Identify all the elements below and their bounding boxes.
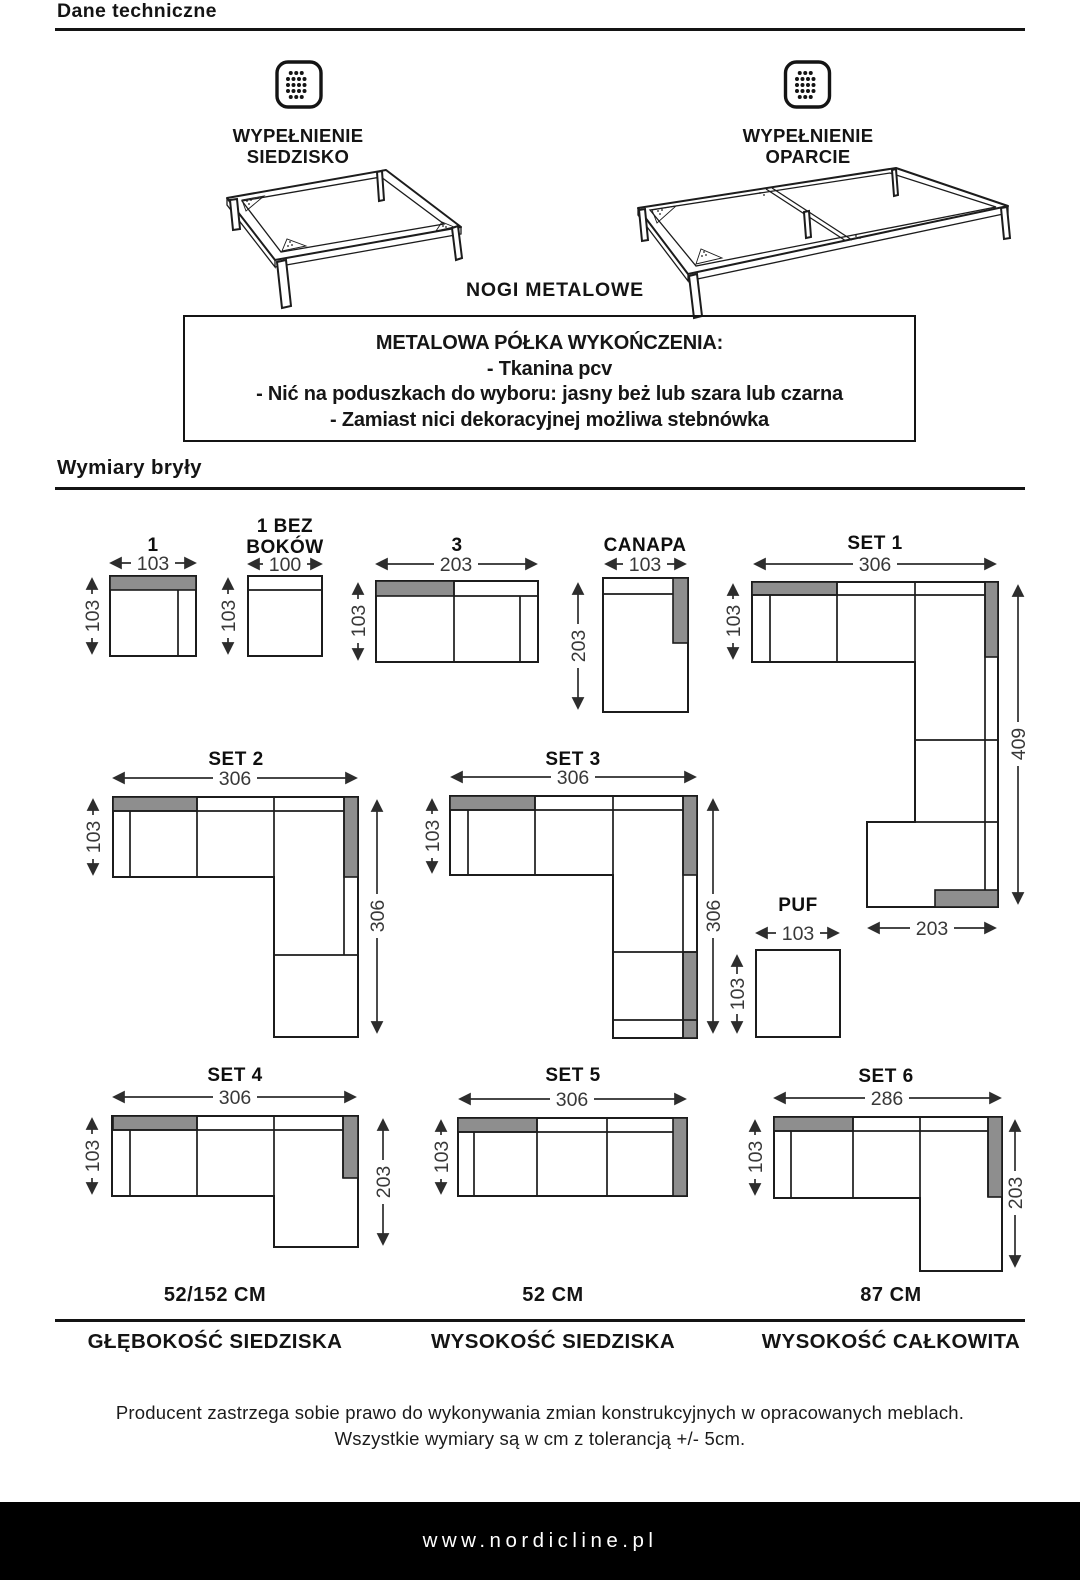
- diagram-set-6: SET 6 286 103 203: [745, 1066, 1027, 1271]
- dim-height-left: 103: [745, 1141, 767, 1174]
- dim-width: 103: [137, 553, 170, 575]
- backrest-strip: [458, 1118, 537, 1132]
- dim-height: 103: [218, 600, 240, 633]
- dim-width: 306: [219, 1087, 252, 1109]
- disclaimer-line-2: Wszystkie wymiary są w cm z tolerancją +…: [0, 1428, 1080, 1450]
- backrest-strip: [113, 1116, 197, 1130]
- dim-width: 306: [557, 767, 590, 789]
- backrest-strip-right: [343, 1116, 358, 1178]
- materials-illustration: WYPEŁNIENIE SIEDZISKO WYPEŁNIENIE OPARCI…: [0, 40, 1080, 320]
- diagram-set-3: SET 3 306 103 306 103: [422, 749, 749, 1038]
- backrest-strip: [376, 581, 454, 596]
- diagram-title: SET 2: [208, 749, 263, 770]
- backrest-strip: [113, 797, 197, 811]
- dim-width: 306: [556, 1089, 589, 1111]
- module-body: [450, 796, 697, 1038]
- back-filling-label-line2: OPARCIE: [765, 146, 850, 167]
- spec-value-seat-height: 52 CM: [433, 1284, 673, 1307]
- backrest-strip-right: [673, 1118, 687, 1196]
- backrest-strip-right: [988, 1117, 1002, 1197]
- dim-width: 306: [859, 554, 892, 576]
- diagram-module-1: 1 103 103: [82, 535, 196, 656]
- footer-bar: www.nordicline.pl: [0, 1502, 1080, 1580]
- dimension-diagrams: 1 103 103 1 BEZ BOKÓW 100 103 3: [0, 500, 1080, 1290]
- back-filling-icon: [786, 62, 830, 107]
- dim-height: 103: [348, 605, 370, 638]
- dim-height-left: 103: [83, 821, 105, 854]
- module-body: [752, 582, 998, 907]
- dim-height-right: 203: [373, 1166, 395, 1199]
- diagram-title: CANAPA: [604, 535, 687, 556]
- metal-legs-label: NOGI METALOWE: [466, 279, 644, 301]
- diagram-set-4: SET 4 306 103 203: [82, 1065, 395, 1247]
- backrest-strip-right: [985, 582, 998, 657]
- diagram-set-1: SET 1 306 103 409 203: [723, 533, 1030, 940]
- dim-width: 286: [871, 1088, 904, 1110]
- page-title: Dane techniczne: [57, 0, 217, 23]
- spec-label-seat-height: WYSOKOŚĆ SIEDZISKA: [413, 1330, 693, 1354]
- backrest-strip-right: [683, 796, 697, 875]
- diagram-title: SET 1: [847, 533, 902, 554]
- module-body: [248, 576, 322, 656]
- seat-frame-wireframe: [227, 170, 462, 308]
- seat-filling-icon: [277, 62, 321, 107]
- dim-height-left: 103: [723, 605, 745, 638]
- diagram-title: SET 6: [858, 1066, 913, 1087]
- dim-height-left: 103: [82, 1140, 104, 1173]
- diagram-module-1-bez-bokow: 1 BEZ BOKÓW 100 103: [218, 516, 324, 656]
- diagram-title: 3: [451, 535, 462, 556]
- module-body: [774, 1117, 1002, 1271]
- backrest-strip: [450, 796, 535, 810]
- module-body: [113, 797, 358, 1037]
- dim-width: 306: [219, 768, 252, 790]
- dim-height-left: 103: [431, 1141, 453, 1174]
- dim-height-right: 306: [367, 900, 389, 933]
- dim-height: 103: [82, 600, 104, 633]
- diagram-puf: PUF 103: [756, 895, 840, 1037]
- spec-label-total-height: WYSOKOŚĆ CAŁKOWITA: [751, 1330, 1031, 1354]
- diagram-module-3: 3 203 103: [348, 535, 538, 662]
- diagram-set-5: SET 5 306 103: [431, 1065, 687, 1196]
- backrest-strip: [752, 582, 837, 595]
- spec-value-seat-depth: 52/152 CM: [95, 1284, 335, 1307]
- module-body: [112, 1116, 358, 1247]
- finish-box-item-3: - Zamiast nici dekoracyjnej możliwa steb…: [185, 408, 914, 434]
- dim-width: 203: [440, 554, 473, 576]
- diagram-title: SET 4: [207, 1065, 262, 1086]
- diagram-canapa: CANAPA 103 203: [568, 535, 688, 712]
- backrest-strip-bottom: [683, 952, 697, 1038]
- diagram-title-line1: 1 BEZ: [257, 516, 313, 537]
- diagram-set-2: SET 2 306 103 306: [83, 749, 389, 1037]
- seat-filling-label-line1: WYPEŁNIENIE: [233, 125, 364, 146]
- dim-height-right: 409: [1008, 728, 1030, 761]
- finish-box-title: METALOWA PÓŁKA WYKOŃCZENIA:: [185, 331, 914, 357]
- header-divider: [55, 28, 1025, 31]
- section-divider: [55, 487, 1025, 490]
- footer-website-url: www.nordicline.pl: [423, 1529, 658, 1553]
- finish-box-item-2: - Nić na poduszkach do wyboru: jasny beż…: [185, 382, 914, 408]
- finish-box-item-1: - Tkanina pcv: [185, 357, 914, 383]
- dim-height-left: 103: [422, 820, 444, 853]
- backrest-strip-right: [344, 797, 358, 877]
- back-filling-label-line1: WYPEŁNIENIE: [743, 125, 874, 146]
- specs-divider: [55, 1319, 1025, 1322]
- section-title: Wymiary bryły: [57, 456, 202, 480]
- module-body: [756, 950, 840, 1037]
- dim-height: 203: [568, 630, 590, 663]
- dim-width: 103: [782, 923, 815, 945]
- back-frame-wireframe: [638, 168, 1010, 318]
- dim-height-right: 203: [1005, 1177, 1027, 1210]
- dim-height-right: 306: [703, 900, 725, 933]
- dim-height-bottom: 103: [727, 978, 749, 1011]
- technical-data-sheet: Dane techniczne WYPEŁNIENIE SIEDZISKO WY…: [0, 0, 1080, 1580]
- backrest-strip-bottom: [935, 890, 998, 907]
- dim-width: 100: [269, 554, 302, 576]
- spec-value-total-height: 87 CM: [771, 1284, 1011, 1307]
- dim-width-bottom: 203: [916, 918, 949, 940]
- diagram-title: PUF: [778, 895, 818, 916]
- backrest-strip: [774, 1117, 853, 1131]
- diagram-title: SET 5: [545, 1065, 600, 1086]
- seat-filling-label-line2: SIEDZISKO: [247, 146, 349, 167]
- finish-options-box: METALOWA PÓŁKA WYKOŃCZENIA: - Tkanina pc…: [183, 315, 916, 442]
- backrest-strip: [110, 576, 196, 590]
- backrest-strip: [673, 578, 688, 643]
- dim-width: 103: [629, 554, 662, 576]
- spec-label-seat-depth: GŁĘBOKOŚĆ SIEDZISKA: [75, 1330, 355, 1354]
- disclaimer-line-1: Producent zastrzega sobie prawo do wykon…: [0, 1402, 1080, 1424]
